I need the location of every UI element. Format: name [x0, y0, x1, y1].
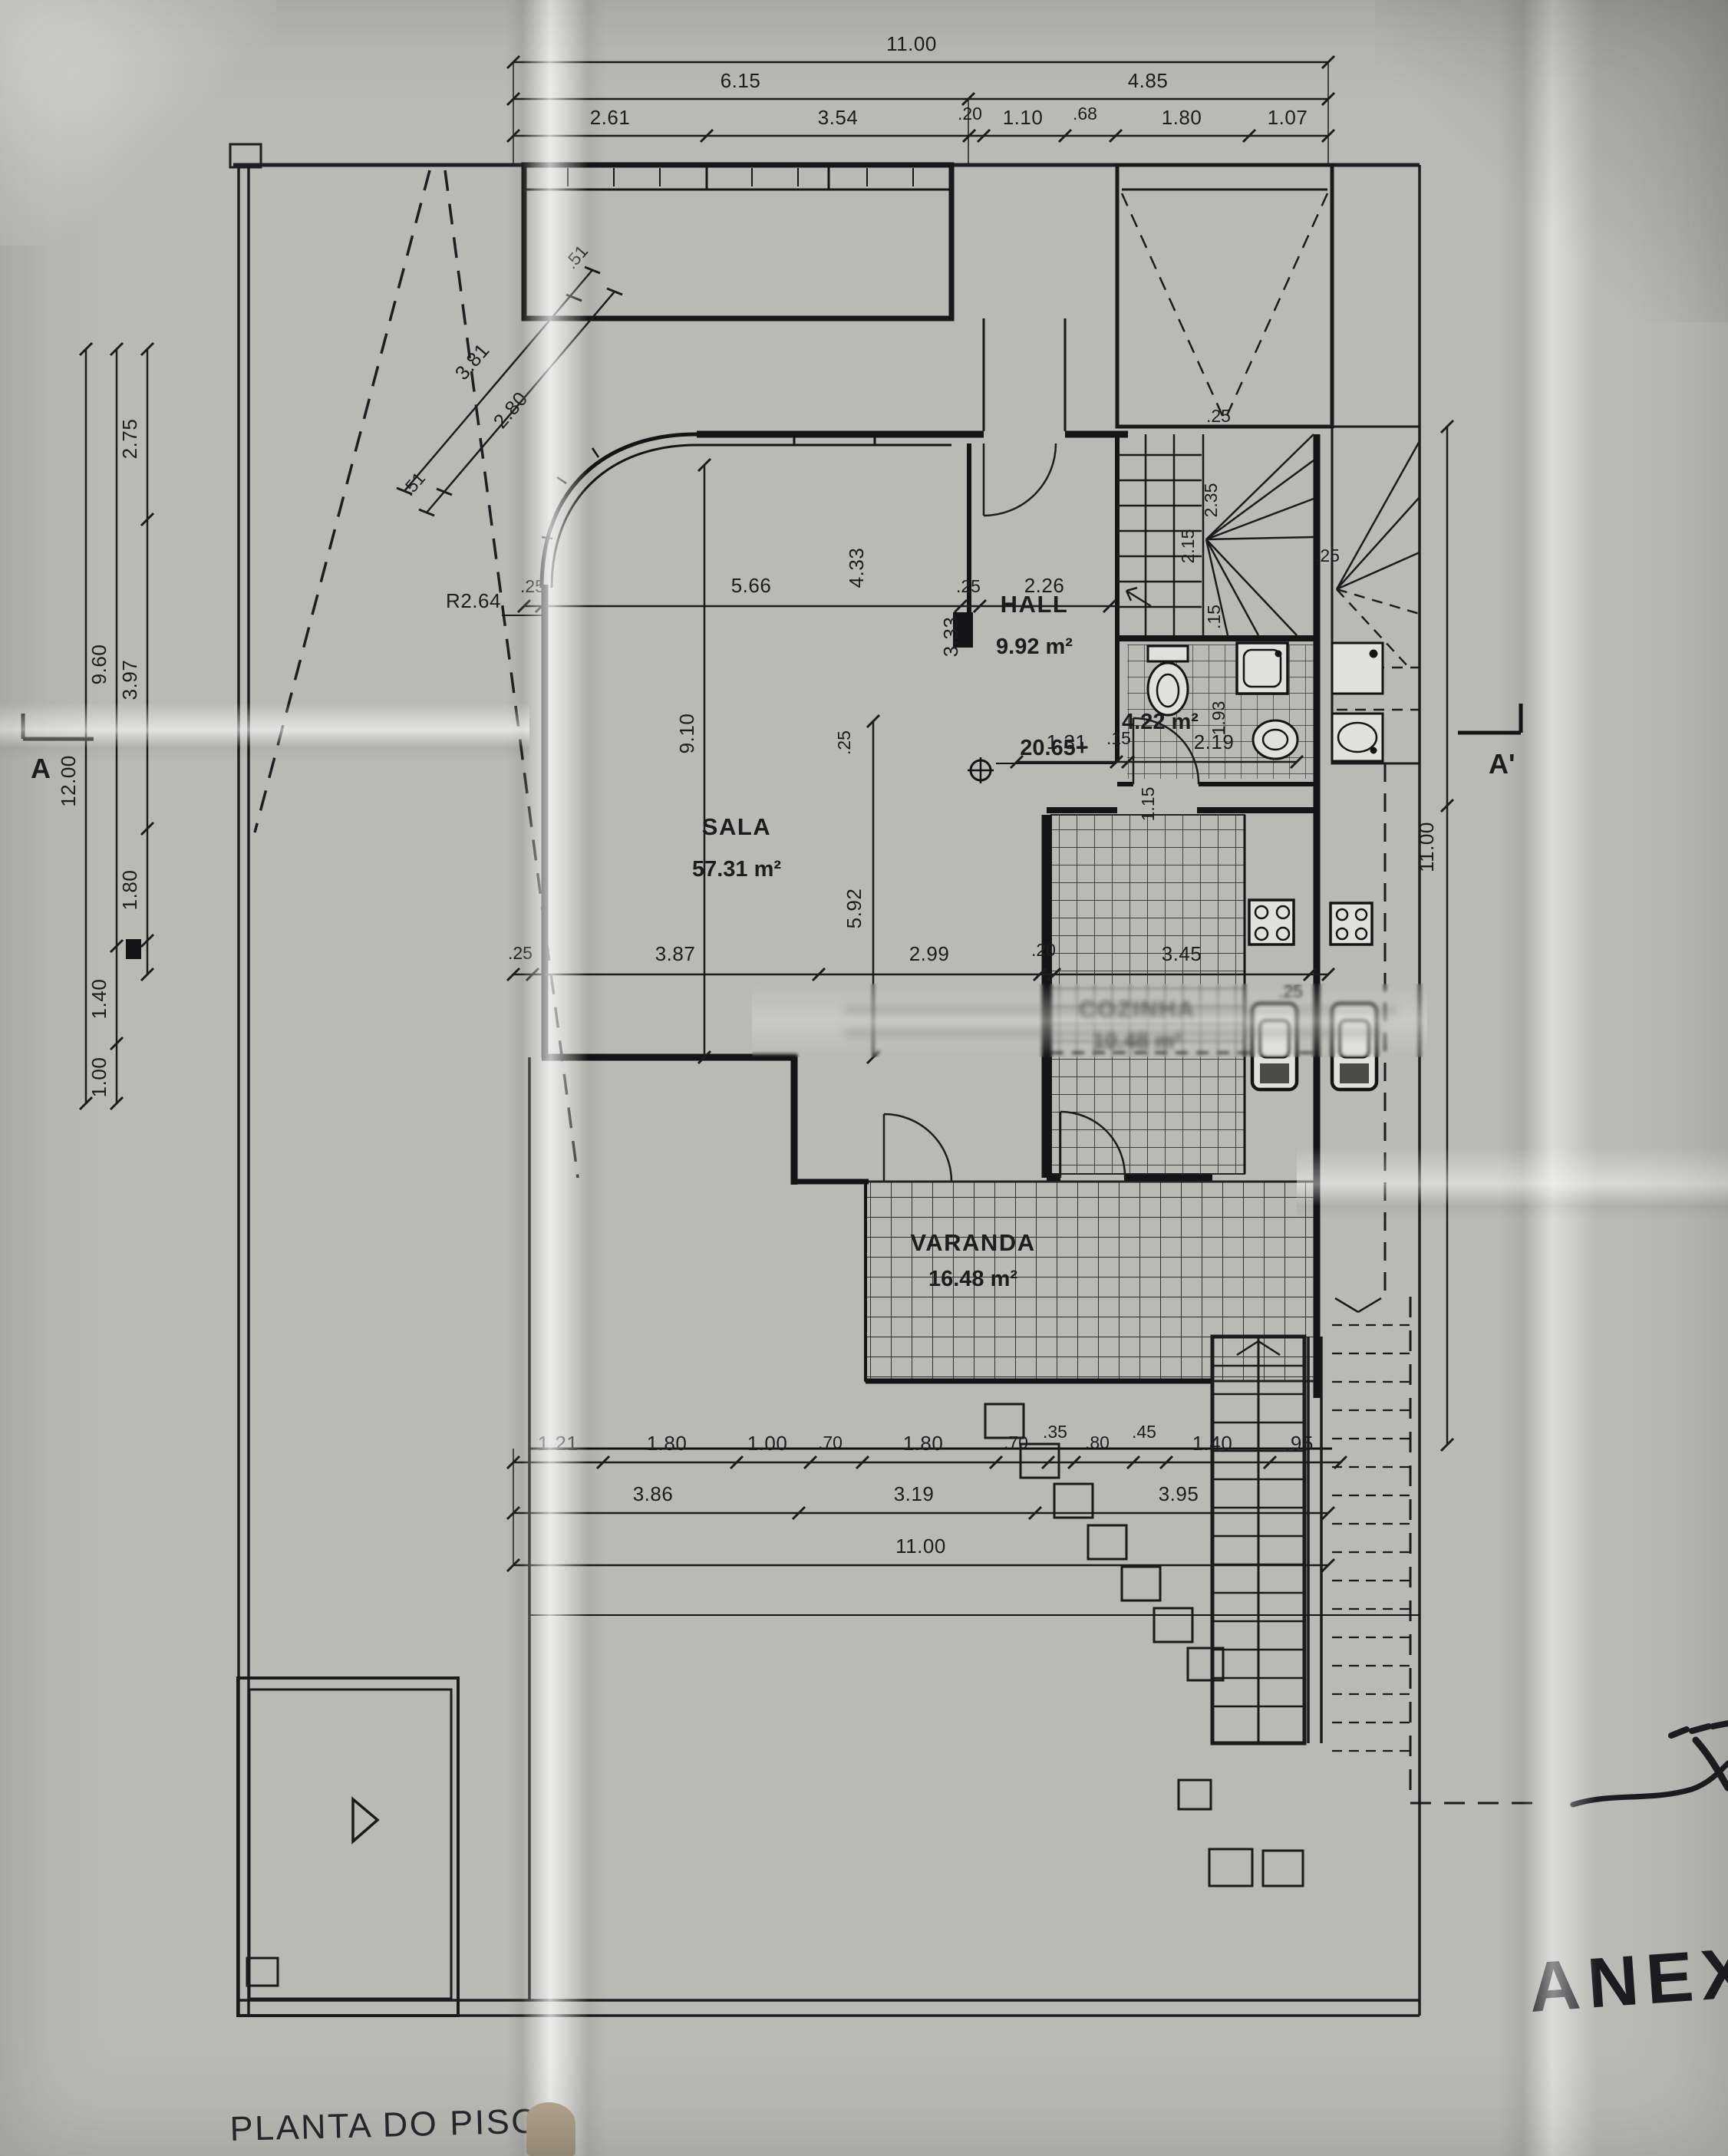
dim: 11.00 [1415, 822, 1438, 872]
dim: .68 [1073, 104, 1097, 124]
section-label-a-prime: A' [1489, 748, 1515, 780]
dim: .20 [958, 104, 982, 124]
dim: 6.15 [721, 69, 761, 92]
wc-area: 4.22 m² [1122, 710, 1199, 734]
dim: 1.31 [1047, 730, 1087, 753]
entry-porch [951, 165, 1065, 431]
dim: 5.92 [843, 888, 866, 929]
dim: 1.21 [538, 1432, 579, 1455]
dim: 11.00 [895, 1535, 946, 1558]
dim: .70 [1004, 1432, 1028, 1452]
handwritten-annex-label: ANEXO [1526, 1929, 1728, 2027]
dim: 3.86 [633, 1482, 674, 1505]
dimension-chain-top: 11.00 6.15 4.85 2.61 3.54 .20 1.10 .68 1… [507, 32, 1334, 165]
dim: 1.40 [1192, 1432, 1233, 1455]
dim: .25 [956, 576, 981, 596]
dim: 2.61 [590, 106, 631, 129]
hall-area: 9.92 m² [996, 635, 1073, 659]
dim: .95 [1284, 1432, 1314, 1455]
section-marker-left [23, 714, 94, 739]
dim: 9.60 [87, 644, 110, 685]
floor-plan-drawing: 20.65+ HALL 9.92 m² SALA 57.31 m² COZINH… [0, 0, 1728, 2156]
dim: 5.66 [731, 574, 772, 597]
sala-label: SALA [702, 813, 771, 840]
dim: 1.10 [1003, 106, 1044, 129]
dim: .70 [818, 1432, 843, 1452]
dim: .25 [1206, 406, 1231, 426]
dim: 1.80 [647, 1432, 688, 1455]
section-label-a: A [31, 753, 51, 784]
dimension-chain-left: 12.00 9.60 1.40 1.00 2.75 3.97 1.80 [57, 343, 153, 1109]
dim: 12.00 [57, 755, 80, 807]
dim: .20 [1031, 940, 1056, 960]
handwritten-scribble [1573, 1723, 1728, 1805]
cooktop2-icon [1331, 903, 1372, 944]
radius-label: R2.64 [446, 589, 501, 612]
dim: 1.00 [747, 1432, 788, 1455]
dim: .80 [1085, 1432, 1110, 1452]
dim: 3.95 [1159, 1482, 1199, 1505]
varanda-label: VARANDA [910, 1229, 1035, 1256]
blur-streak [844, 1030, 1381, 1037]
triangle-symbol [353, 1799, 378, 1841]
dim: 2.35 [1201, 483, 1221, 518]
dim: 3.33 [939, 617, 962, 658]
dim: 1.80 [903, 1432, 944, 1455]
sala-area: 57.31 m² [692, 857, 781, 882]
annex-tank-outline [238, 1678, 458, 2016]
dimension-chain-diagonal: 3.81 2.80 .51 .51 [397, 241, 622, 516]
dim: 1.07 [1268, 106, 1308, 129]
dim: 2.15 [1178, 529, 1198, 564]
dim: 1.15 [1138, 787, 1158, 822]
dim: .25 [1315, 546, 1340, 565]
kitchen-tiles [1051, 815, 1245, 1174]
garage-block [1117, 165, 1332, 427]
dim: 1.93 [1209, 701, 1228, 736]
dim: 4.33 [845, 548, 868, 588]
photographed-floor-plan: 20.65+ HALL 9.92 m² SALA 57.31 m² COZINH… [0, 0, 1728, 2156]
dim: 3.54 [818, 106, 859, 129]
dim: 4.85 [1128, 69, 1169, 92]
dim: .25 [508, 943, 533, 963]
dim: 9.10 [675, 714, 698, 754]
stepping-stones [985, 1404, 1303, 1886]
dim: 1.00 [87, 1057, 110, 1098]
varanda-area: 16.48 m² [928, 1267, 1017, 1291]
dim: .25 [1278, 981, 1303, 1001]
dim: 2.26 [1024, 574, 1065, 597]
dim: .51 [398, 468, 430, 499]
dim: .25 [834, 730, 854, 755]
dim: 3.97 [118, 660, 141, 701]
section-marker-right [1458, 704, 1521, 733]
dim: .25 [520, 576, 545, 596]
dim: 1.40 [87, 979, 110, 1020]
blur-streak [844, 1007, 1397, 1014]
dim: .15 [1106, 728, 1131, 748]
dim: 3.87 [655, 942, 696, 965]
dim: 1.80 [1162, 106, 1202, 129]
dim: 11.00 [886, 32, 937, 55]
dim: .35 [1043, 1422, 1067, 1442]
dim: 2.99 [909, 942, 950, 965]
dashed-overhang-lines [1385, 763, 1542, 1803]
plan-title: PLANTA DO PISO 0 [229, 2100, 573, 2148]
upper-terrace [524, 165, 951, 318]
dim: 1.80 [118, 870, 141, 911]
dim: 2.80 [489, 387, 533, 432]
dimension-chain-bottom: 1.21 1.80 1.00 .70 1.80 .70 .35 .80 .45 … [507, 1422, 1347, 1571]
dim: .15 [1204, 605, 1224, 629]
dim: 3.81 [450, 338, 494, 384]
dim: 2.75 [118, 419, 141, 460]
dim: .45 [1132, 1422, 1156, 1442]
dim: 3.45 [1162, 942, 1202, 965]
dim: 3.19 [894, 1482, 935, 1505]
dashed-projection-lines [255, 170, 578, 1178]
